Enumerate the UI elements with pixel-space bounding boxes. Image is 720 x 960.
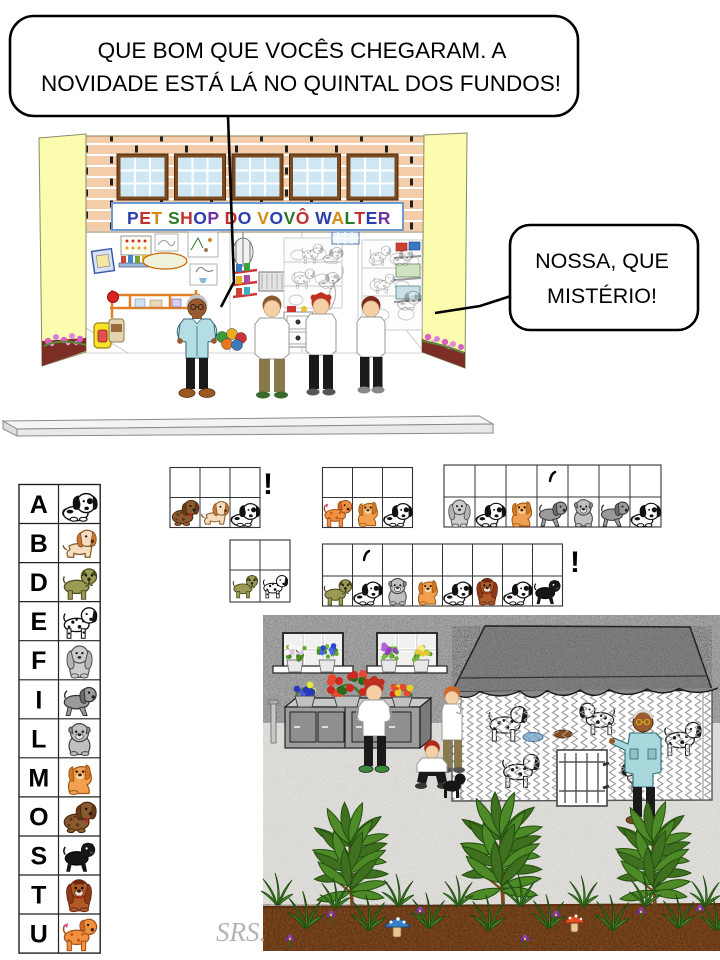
svg-text:D: D (30, 569, 48, 597)
svg-text:NOSSA, QUE: NOSSA, QUE (535, 249, 669, 273)
svg-text:!: ! (263, 468, 273, 501)
svg-text:!: ! (570, 546, 580, 579)
svg-text:MISTÉRIO!: MISTÉRIO! (547, 283, 657, 308)
svg-text:M: M (28, 764, 49, 792)
svg-text:T: T (31, 882, 46, 910)
svg-text:L: L (31, 725, 46, 753)
svg-text:SRS.: SRS. (216, 917, 266, 947)
svg-text:NOVIDADE ESTÁ LÁ NO QUINTAL DO: NOVIDADE ESTÁ LÁ NO QUINTAL DOS FUNDOS! (41, 71, 561, 96)
svg-text:PET SHOP DO VOVÔ WALTER: PET SHOP DO VOVÔ WALTER (127, 207, 391, 228)
svg-text:A: A (30, 491, 48, 519)
svg-text:F: F (31, 647, 46, 675)
svg-text:B: B (30, 530, 48, 558)
svg-text:QUE BOM QUE VOCÊS CHEGARAM. A: QUE BOM QUE VOCÊS CHEGARAM. A (98, 38, 507, 63)
svg-text:E: E (30, 608, 47, 636)
svg-text:U: U (30, 921, 48, 949)
svg-text:O: O (29, 803, 48, 831)
svg-text:S: S (30, 843, 47, 871)
svg-text:I: I (35, 686, 42, 714)
